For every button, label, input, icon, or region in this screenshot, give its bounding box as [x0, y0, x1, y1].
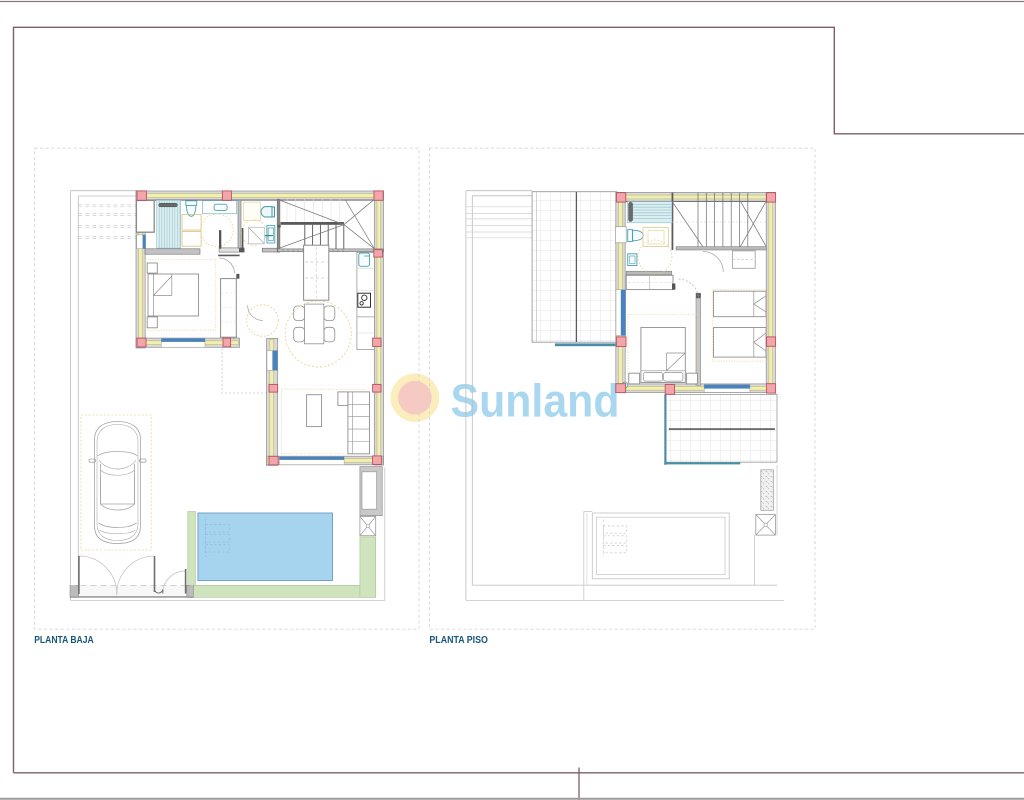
- svg-text:PLANTA PISO: PLANTA PISO: [429, 635, 488, 646]
- svg-text:PLANTA BAJA: PLANTA BAJA: [34, 635, 94, 646]
- svg-text:Sunland: Sunland: [451, 375, 620, 427]
